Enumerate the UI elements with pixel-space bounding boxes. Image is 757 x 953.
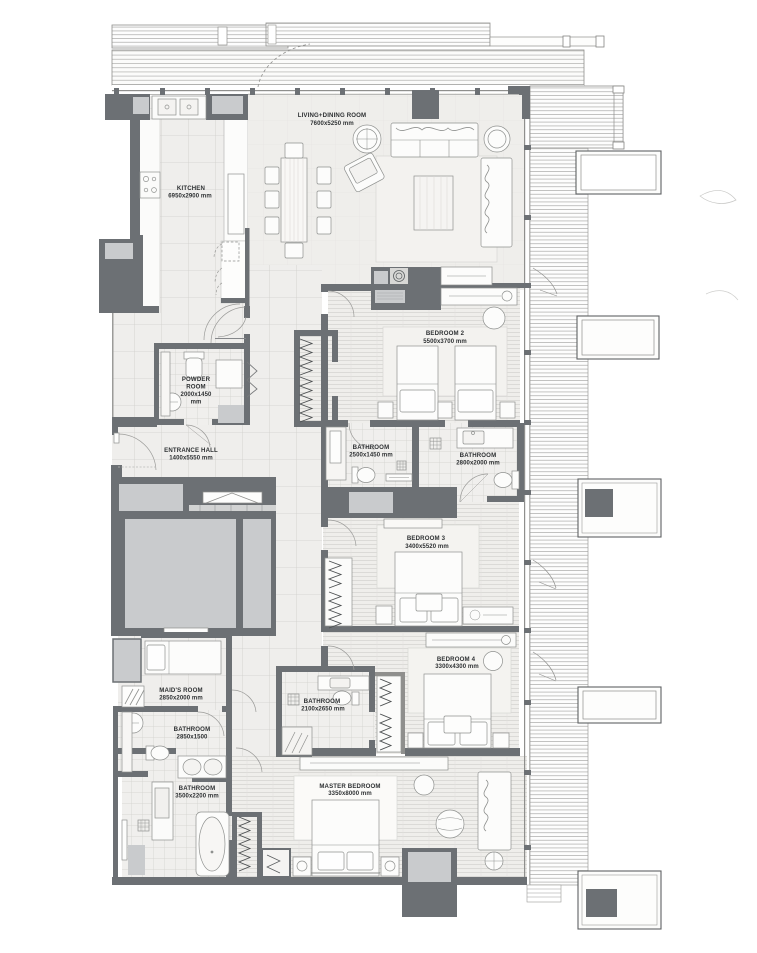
svg-text:2100x2650 mm: 2100x2650 mm [301, 707, 345, 713]
svg-text:ENTRANCE HALL: ENTRANCE HALL [164, 447, 218, 454]
svg-text:mm: mm [191, 400, 202, 406]
svg-text:2850x2000 mm: 2850x2000 mm [159, 696, 203, 702]
svg-text:3300x4300 mm: 3300x4300 mm [435, 664, 479, 670]
svg-text:3350x8000 mm: 3350x8000 mm [328, 791, 372, 797]
svg-text:BATHROOM: BATHROOM [304, 698, 341, 705]
svg-text:BATHROOM: BATHROOM [353, 444, 390, 451]
svg-text:2800x2000 mm: 2800x2000 mm [456, 461, 500, 467]
svg-text:2850x1500: 2850x1500 [177, 735, 208, 741]
svg-text:BEDROOM 2: BEDROOM 2 [426, 330, 465, 337]
svg-text:POWDER: POWDER [182, 376, 211, 383]
svg-text:BATHROOM: BATHROOM [179, 785, 216, 792]
svg-text:BATHROOM: BATHROOM [174, 726, 211, 733]
svg-text:1400x5550 mm: 1400x5550 mm [169, 456, 213, 462]
svg-text:MAID'S ROOM: MAID'S ROOM [159, 687, 202, 694]
svg-text:MASTER BEDROOM: MASTER BEDROOM [319, 783, 380, 790]
svg-text:3500x2200 mm: 3500x2200 mm [175, 794, 219, 800]
svg-text:BEDROOM 4: BEDROOM 4 [437, 656, 476, 663]
svg-text:ROOM: ROOM [186, 384, 206, 391]
svg-text:2000x1450: 2000x1450 [181, 392, 212, 398]
svg-text:6950x2900 mm: 6950x2900 mm [168, 194, 212, 200]
svg-text:3400x5520 mm: 3400x5520 mm [405, 544, 449, 550]
svg-text:LIVING+DINING ROOM: LIVING+DINING ROOM [298, 112, 367, 119]
svg-text:BEDROOM 3: BEDROOM 3 [407, 535, 446, 542]
svg-text:BATHROOM: BATHROOM [460, 452, 497, 459]
svg-text:2500x1450 mm: 2500x1450 mm [349, 453, 393, 459]
svg-text:7600x5250 mm: 7600x5250 mm [310, 121, 354, 127]
svg-text:5500x3700 mm: 5500x3700 mm [423, 339, 467, 345]
svg-text:KITCHEN: KITCHEN [177, 185, 205, 192]
